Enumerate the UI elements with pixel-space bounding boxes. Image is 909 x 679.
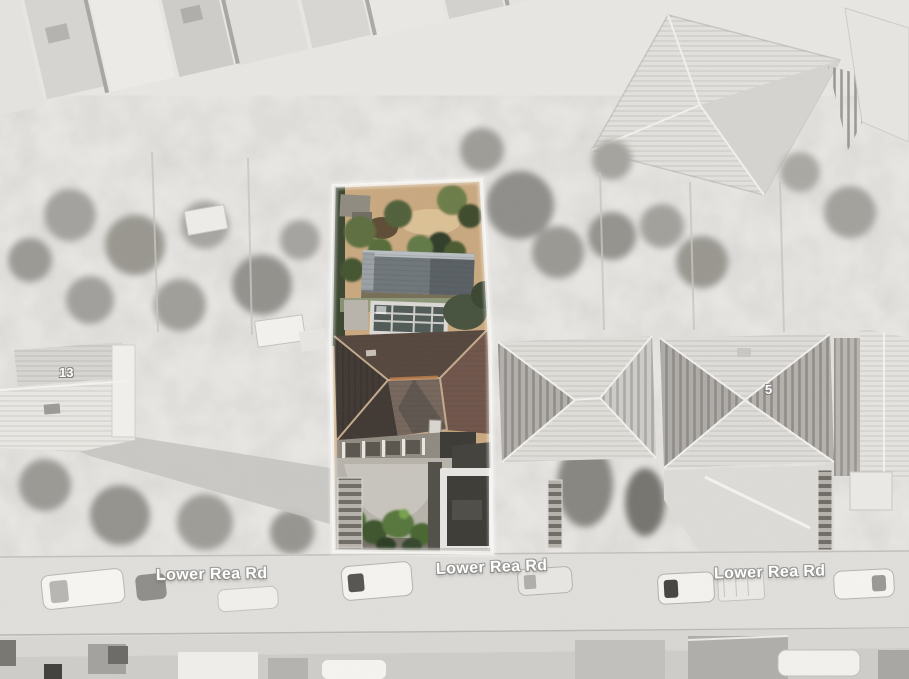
aerial-map-viewport[interactable]: Lower Rea Rd Lower Rea Rd Lower Rea Rd 1… (0, 0, 909, 679)
house-number-13: 13 (59, 366, 73, 379)
house-number-5: 5 (765, 383, 772, 396)
road-label-lower-rea-rd-1: Lower Rea Rd (156, 566, 268, 584)
road-label-lower-rea-rd-3: Lower Rea Rd (714, 564, 826, 583)
